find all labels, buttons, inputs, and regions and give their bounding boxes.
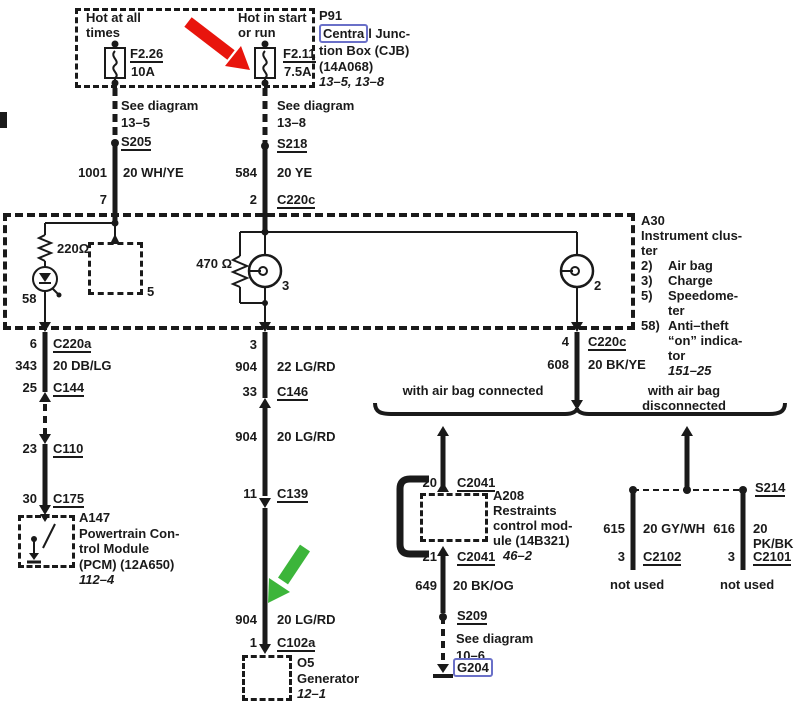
pin-6: 6 <box>0 336 37 351</box>
conn-c175[interactable]: C175 <box>53 491 84 508</box>
led-indicator-icon <box>33 267 62 298</box>
circuit-904b: 904 <box>217 429 257 444</box>
conn-c220a[interactable]: C220a <box>53 336 91 353</box>
resistor-icon <box>39 235 51 261</box>
resistor-icon <box>233 256 247 287</box>
gauge-22lgrd: 22 LG/RD <box>277 359 336 374</box>
cluster-pages: 151–25 <box>668 363 795 378</box>
pin-2: 2 <box>217 192 257 207</box>
pcm-pages: 112–4 <box>79 572 209 588</box>
pin-20: 20 <box>397 475 437 490</box>
circuit-904a: 904 <box>217 359 257 374</box>
conn-c2101[interactable]: C2101 <box>753 549 791 566</box>
central-link[interactable]: Centra <box>319 24 368 44</box>
conn-c110[interactable]: C110 <box>53 441 83 458</box>
conn-c146[interactable]: C146 <box>277 384 308 401</box>
circuit-616: 616 <box>695 521 735 536</box>
pin-3-right: 3 <box>695 549 735 564</box>
see-diagram-right: See diagram 13–8 <box>277 97 354 131</box>
generator-pages: 12–1 <box>297 686 387 702</box>
pin-25: 25 <box>0 380 37 395</box>
feed-wire-right <box>261 88 269 230</box>
fuse2-rating: 7.5A <box>284 64 311 79</box>
page-edge-mark <box>0 112 7 128</box>
speedometer-pin5: 5 <box>147 284 154 299</box>
circuit-608: 608 <box>529 357 569 372</box>
bulb-icon <box>249 255 281 287</box>
gauge-20bkog: 20 BK/OG <box>453 578 514 593</box>
hot-at-all-times-label: Hot at all times <box>86 10 141 40</box>
wire-col1 <box>39 332 51 515</box>
fuse-panel-callout: P91 Central Junc- tion Box (CJB) (14A068… <box>319 8 429 90</box>
g204-link[interactable]: G204 <box>453 658 493 677</box>
conn-c2041-bottom[interactable]: C2041 <box>457 549 495 566</box>
splice-s214[interactable]: S214 <box>755 480 785 497</box>
led-58-label: 58 <box>22 291 36 306</box>
cluster-left-branch <box>33 220 120 333</box>
airbag-connected-label: with air bag connected <box>398 383 548 398</box>
cluster-callout: A30 Instrument clus- ter 2)Air bag 3)Cha… <box>641 213 795 378</box>
pcm-callout: A147 Powertrain Con- trol Module (PCM) (… <box>79 510 209 588</box>
legend-speedometer: 5)Speedome- ter <box>641 288 795 318</box>
circuit-649: 649 <box>397 578 437 593</box>
pin-21: 21 <box>397 549 437 564</box>
circuit-1001: 1001 <box>67 165 107 180</box>
gauge-20pkbk: 20 PK/BK <box>753 521 796 551</box>
fuse2-name[interactable]: F2.11 <box>283 46 316 63</box>
circuit-615: 615 <box>585 521 625 536</box>
wire-col3 <box>571 332 583 410</box>
bulb-icon <box>561 255 593 287</box>
pcm-switch-icon <box>27 514 55 562</box>
splice-s209[interactable]: S209 <box>457 608 487 625</box>
circuit-343: 343 <box>0 358 37 373</box>
resistor-470-label: 470 Ω <box>192 256 232 271</box>
conn-c2102[interactable]: C2102 <box>643 549 681 566</box>
pin-33: 33 <box>217 384 257 399</box>
pin-23: 23 <box>0 441 37 456</box>
ground-g204: G204 <box>453 658 493 677</box>
cluster-right-branch <box>561 232 593 332</box>
bulb-2-label: 2 <box>594 278 601 293</box>
see-diagram-left: See diagram 13–5 <box>121 97 198 131</box>
conn-c139[interactable]: C139 <box>277 486 308 503</box>
fuse-icon <box>105 41 125 89</box>
ground-icon <box>433 664 453 676</box>
pin-1: 1 <box>217 635 257 650</box>
conn-c144[interactable]: C144 <box>53 380 84 397</box>
pin-4: 4 <box>529 334 569 349</box>
fuse1-rating: 10A <box>131 64 155 79</box>
conn-c220c-bottom[interactable]: C220c <box>588 334 626 351</box>
bulb-3-label: 3 <box>282 278 289 293</box>
green-arrow-icon <box>268 548 305 603</box>
gauge-20ye: 20 YE <box>277 165 312 180</box>
generator-callout: O5 Generator 12–1 <box>297 655 387 702</box>
gauge-20lgrd-c: 20 LG/RD <box>277 612 336 627</box>
splice-s218[interactable]: S218 <box>277 136 307 153</box>
not-used-right: not used <box>720 577 774 592</box>
legend-air-bag: 2)Air bag <box>641 258 795 273</box>
connector-bracket-icon <box>400 479 429 554</box>
pin-7: 7 <box>67 192 107 207</box>
restraints-id: A208 <box>493 488 603 503</box>
pin-3: 3 <box>217 337 257 352</box>
not-used-left: not used <box>610 577 664 592</box>
generator-id: O5 <box>297 655 387 671</box>
airbag-disconnected-label: with air bag disconnected <box>609 383 759 413</box>
conn-c220c-top[interactable]: C220c <box>277 192 315 209</box>
conn-c2041-top[interactable]: C2041 <box>457 475 495 492</box>
splice-s205[interactable]: S205 <box>121 134 151 151</box>
wire-col2 <box>259 332 271 654</box>
fuse-panel-pages: 13–5, 13–8 <box>319 74 429 90</box>
circuit-584: 584 <box>217 165 257 180</box>
gauge-20bkye: 20 BK/YE <box>588 357 646 372</box>
legend-anti-theft: 58)Anti–theft “on” indica- tor <box>641 318 795 363</box>
resistor-220-label: 220Ω <box>57 241 89 256</box>
conn-c102a[interactable]: C102a <box>277 635 315 652</box>
gauge-20lgrd-b: 20 LG/RD <box>277 429 336 444</box>
legend-charge: 3)Charge <box>641 273 795 288</box>
cluster-id: A30 <box>641 213 795 228</box>
circuit-904c: 904 <box>217 612 257 627</box>
pcm-id: A147 <box>79 510 209 526</box>
feed-wire-left <box>111 88 119 222</box>
gauge-20whye: 20 WH/YE <box>123 165 184 180</box>
pin-3-left: 3 <box>585 549 625 564</box>
pin-30: 30 <box>0 491 37 506</box>
fuse-icon <box>255 41 275 89</box>
pin-11: 11 <box>217 486 257 501</box>
hot-in-start-label: Hot in start or run <box>238 10 307 40</box>
fuse-panel-id: P91 <box>319 8 429 24</box>
gauge-20dblg: 20 DB/LG <box>53 358 112 373</box>
fuse1-name[interactable]: F2.26 <box>130 46 163 63</box>
wiring-diagram-page: Hot at all times Hot in start or run F2.… <box>0 0 796 712</box>
